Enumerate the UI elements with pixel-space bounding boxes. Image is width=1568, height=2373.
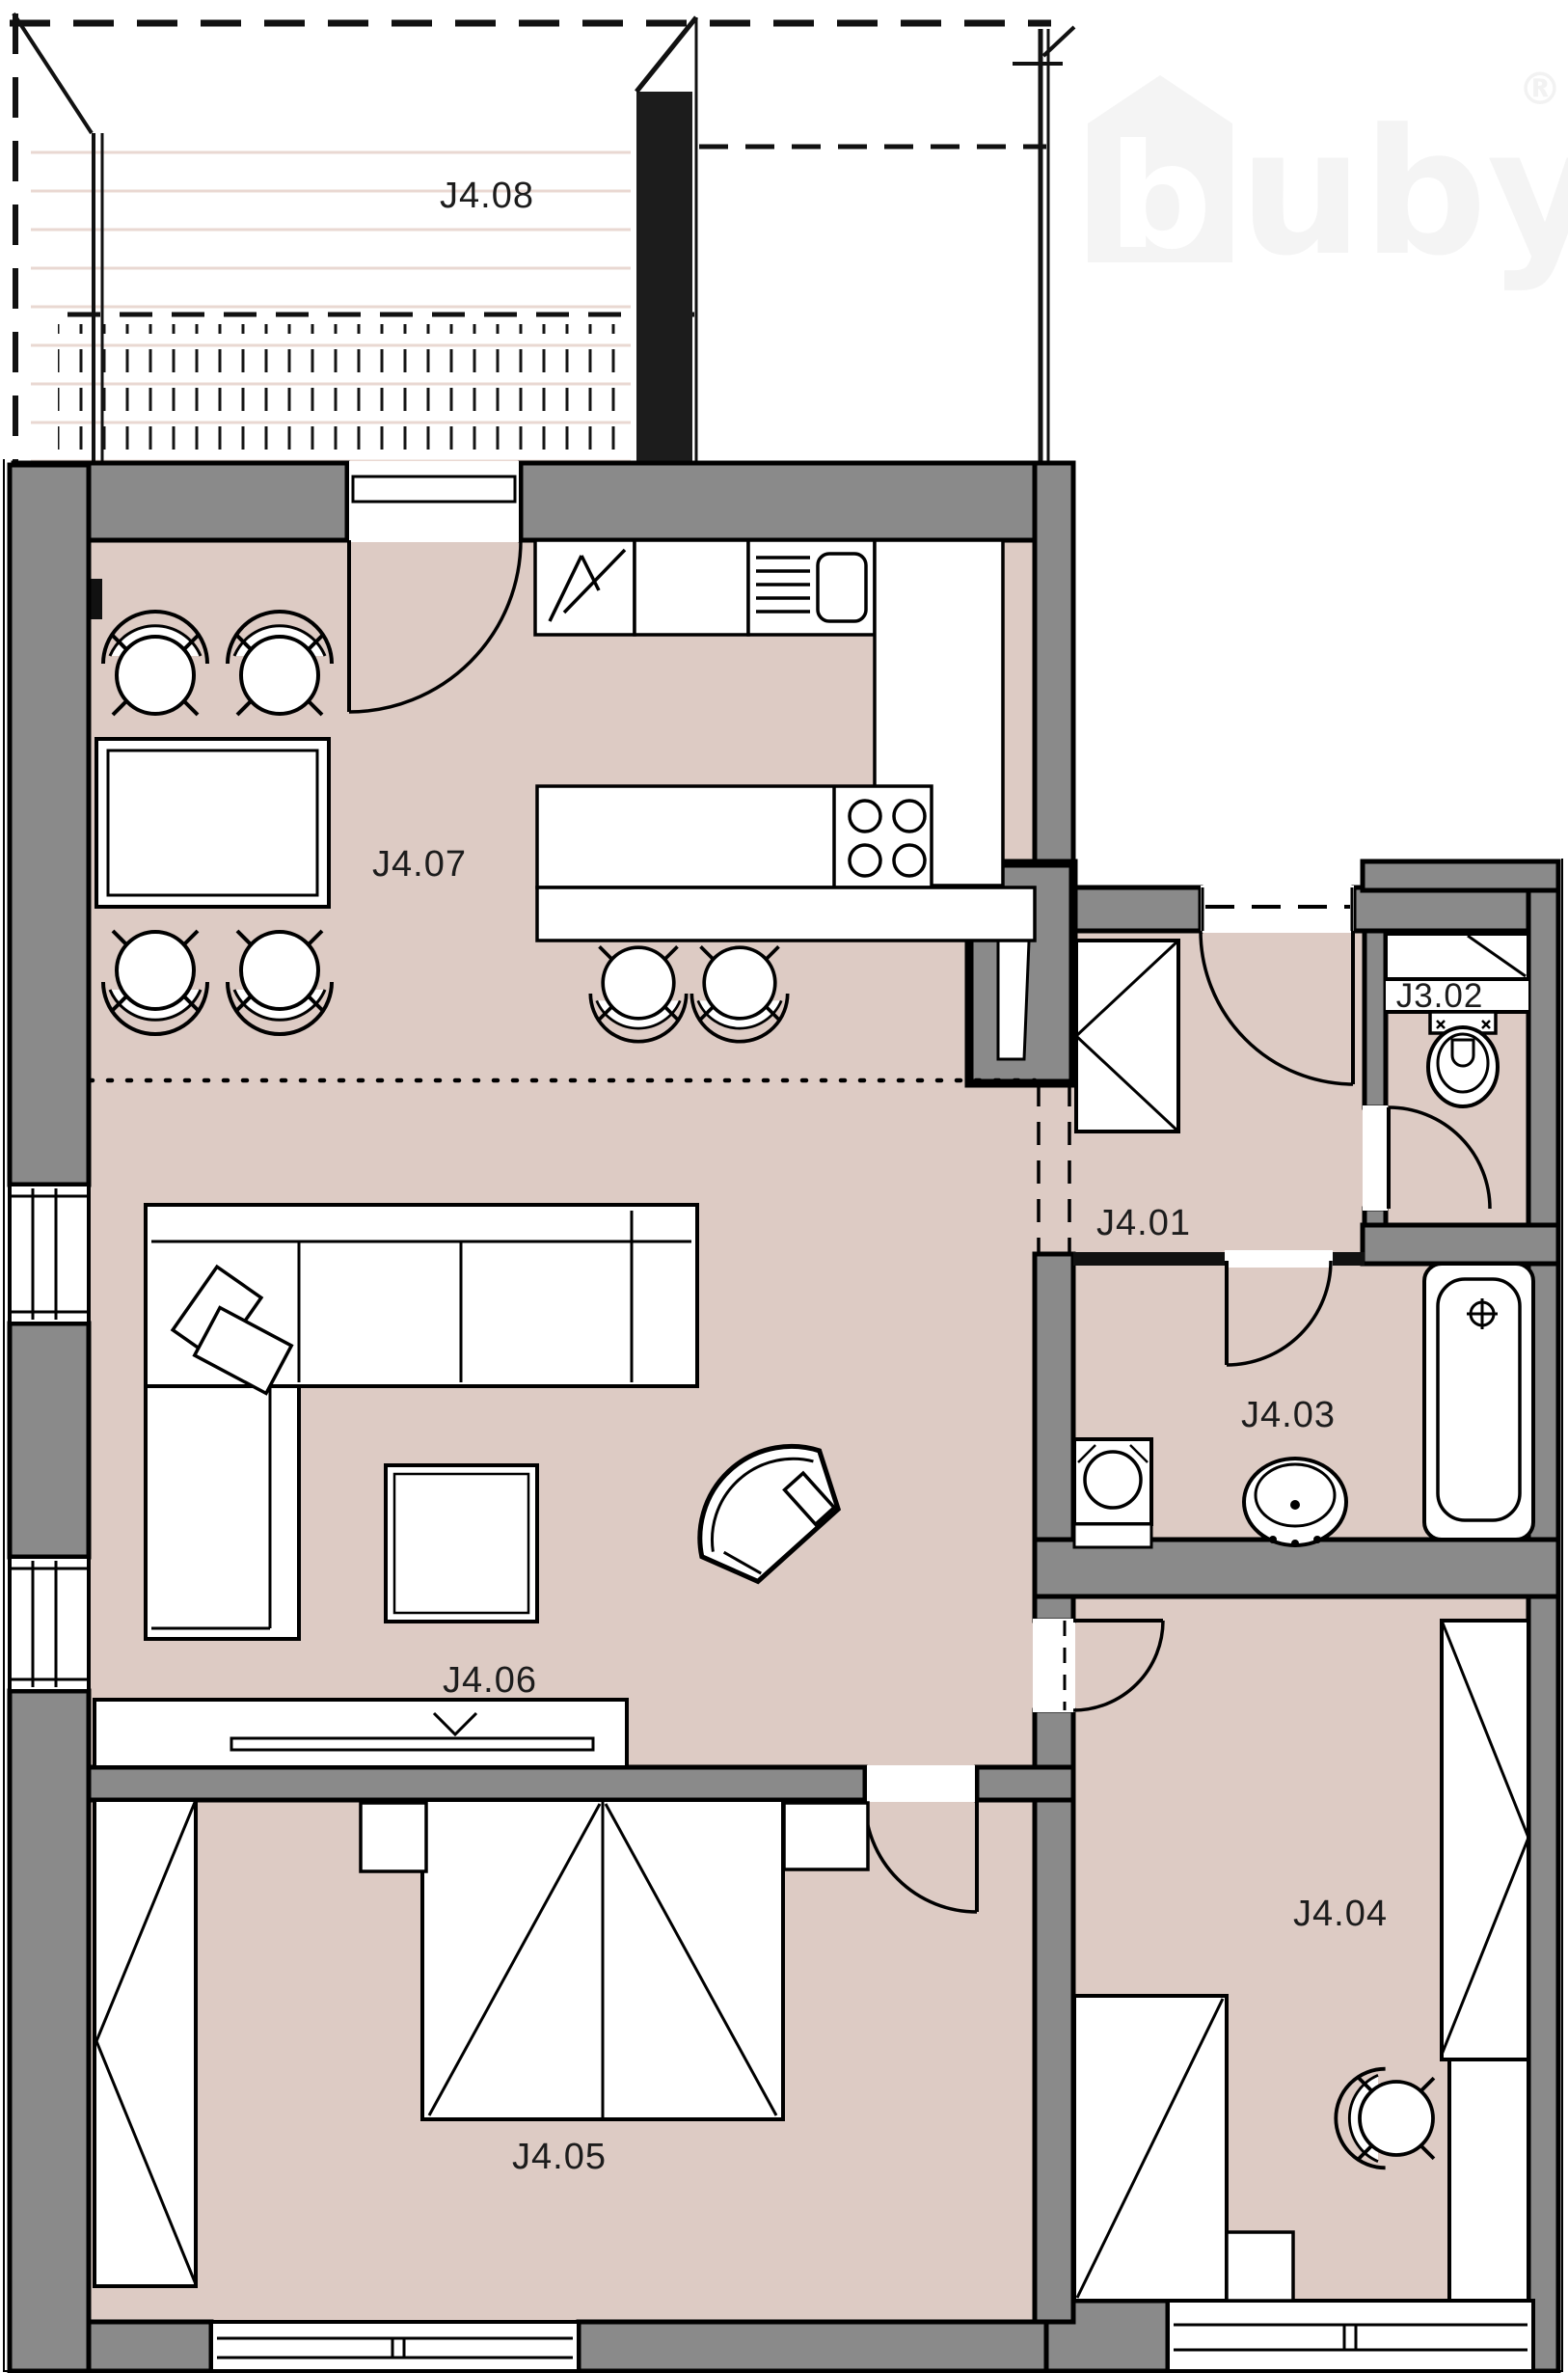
room-label-j404: J4.04: [1293, 1894, 1388, 1934]
window-j405: [211, 2322, 579, 2371]
wall-j405-top-left: [89, 1767, 865, 1800]
room-label-j408: J4.08: [440, 176, 534, 216]
wall-bottom-j405-right: [579, 2322, 1076, 2371]
watermark-logo-letter: b: [1108, 114, 1211, 282]
wall-bath-top-left: [1073, 1252, 1227, 1266]
wall-left-a: [10, 465, 89, 1185]
wardrobe-j404: [1442, 1621, 1528, 2059]
floor-plan-svg: b uby ®: [0, 0, 1568, 2373]
room-label-j405: J4.05: [512, 2137, 607, 2177]
tv-icon: [231, 1738, 593, 1750]
terrace-hatching: [58, 324, 629, 461]
wardrobe-j405: [95, 1800, 196, 2286]
kitchen-cabinet: [635, 540, 748, 635]
toilet-icon: [1428, 1012, 1498, 1106]
double-bed: [422, 1800, 783, 2119]
wall-bath-top-right: [1331, 1252, 1365, 1266]
nightstand: [361, 1803, 426, 1871]
room-label-j406: J4.06: [443, 1660, 537, 1701]
wall-top-right: [521, 463, 1046, 540]
wall-j405-top-right: [977, 1767, 1073, 1800]
washing-machine-icon: [1074, 1439, 1151, 1547]
watermark-registered-icon: ®: [1518, 63, 1562, 115]
nightstand: [784, 1803, 868, 1869]
wall-right: [1528, 861, 1558, 2371]
terrace-side-wall: [636, 92, 692, 463]
hall-wardrobe: [1076, 941, 1178, 1132]
wall-left-b: [10, 1323, 89, 1557]
washbasin-icon: [1244, 1459, 1346, 1547]
wall-mid-vertical-top: [1035, 463, 1073, 912]
room-label-j407: J4.07: [372, 844, 467, 885]
watermark: b uby ®: [1088, 63, 1568, 294]
watermark-brand-text: uby: [1239, 93, 1568, 294]
sink-basin-icon: [818, 554, 866, 621]
wall-wc-left-a: [1365, 931, 1386, 1107]
room-label-j401: J4.01: [1096, 1203, 1191, 1243]
bathtub-icon: [1424, 1264, 1533, 1540]
wall-entry-left: [1072, 887, 1201, 931]
window-j404: [1168, 2301, 1533, 2371]
bar-counter: [537, 887, 1035, 941]
single-bed: [1074, 1996, 1227, 2301]
desk: [1449, 2059, 1528, 2301]
room-label-j403: J4.03: [1241, 1395, 1336, 1435]
hall-j401: [1076, 941, 1178, 1132]
nightstand: [1227, 2232, 1293, 2301]
shelf-niche: [1386, 934, 1528, 979]
room-label-j302: J3.02: [1396, 977, 1484, 1015]
tv-sideboard: [95, 1700, 627, 1767]
floor-plan-canvas: b uby ®: [0, 0, 1568, 2373]
floor-passage: [1035, 1083, 1073, 1254]
window-left-living-a: [10, 1185, 89, 1323]
window-left-living-b: [10, 1557, 89, 1691]
dining-table-top: [108, 750, 317, 895]
terrace-corner-line: [14, 14, 92, 133]
wall-below-wc: [1363, 1225, 1558, 1264]
wall-bottom-j405-left: [89, 2322, 211, 2371]
wall-entry-right: [1354, 887, 1528, 931]
terrace-roof-slope: [636, 17, 696, 92]
coffee-table: [386, 1465, 537, 1622]
wall-wc-top: [1363, 861, 1558, 890]
wall-left-c: [10, 1691, 89, 2371]
